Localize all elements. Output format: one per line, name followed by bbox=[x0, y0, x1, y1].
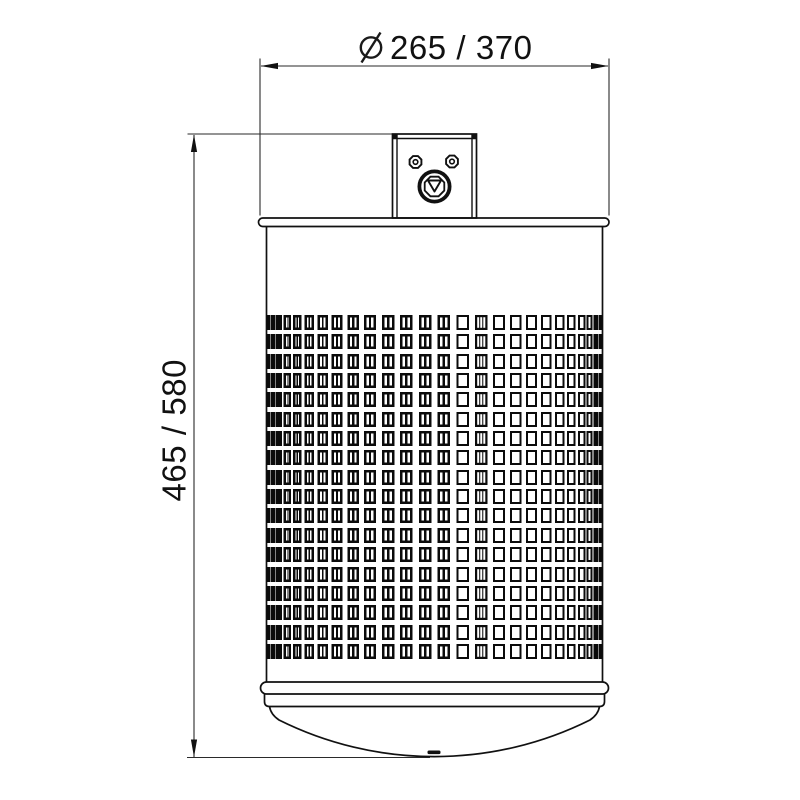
svg-text:265 / 370: 265 / 370 bbox=[390, 29, 532, 66]
svg-text:465 / 580: 465 / 580 bbox=[156, 360, 193, 502]
